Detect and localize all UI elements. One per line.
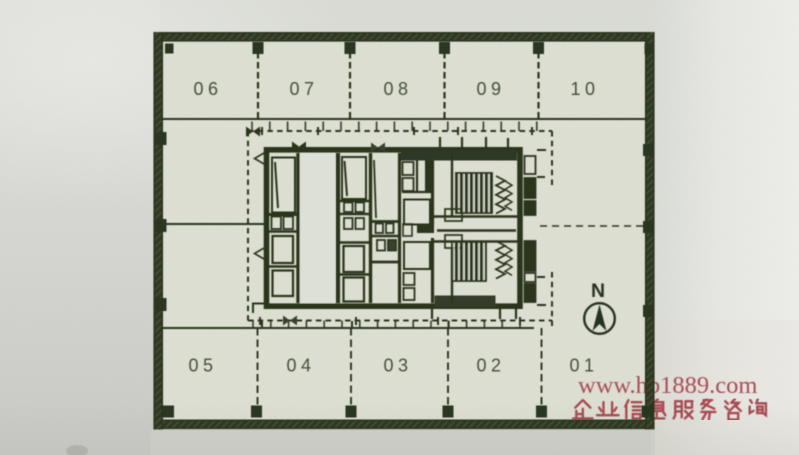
svg-text:06: 06: [193, 79, 222, 99]
svg-text:09: 09: [476, 79, 505, 99]
svg-text:07: 07: [289, 79, 318, 99]
svg-text:08: 08: [383, 79, 412, 99]
svg-text:03: 03: [383, 356, 412, 376]
svg-text:02: 02: [476, 356, 505, 376]
svg-text:05: 05: [188, 356, 217, 376]
svg-text:04: 04: [286, 356, 315, 376]
svg-text:www.hb1889.com: www.hb1889.com: [578, 372, 757, 399]
svg-text:10: 10: [570, 79, 599, 99]
svg-text:N: N: [591, 280, 605, 302]
svg-text:01: 01: [569, 356, 598, 376]
